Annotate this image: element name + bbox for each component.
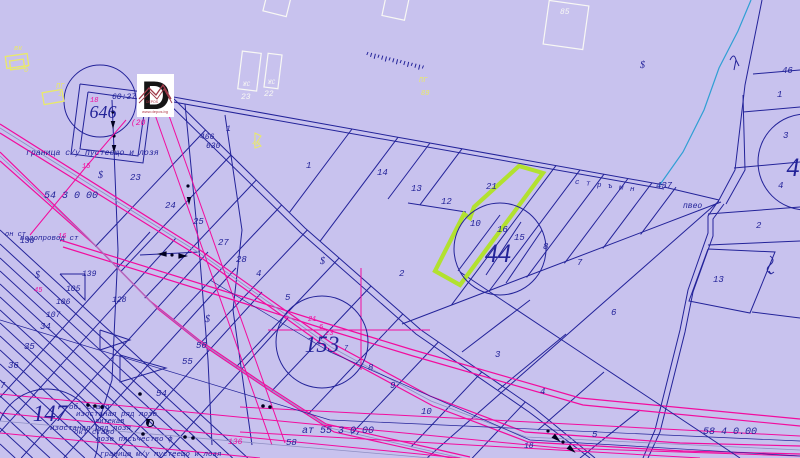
svg-text:18: 18 [90,97,98,105]
svg-text:18: 18 [524,442,534,451]
svg-text:6: 6 [611,308,617,318]
svg-text:15: 15 [514,233,525,243]
svg-text:147: 147 [33,401,69,426]
svg-text:3: 3 [495,350,501,360]
svg-text:4: 4 [787,153,800,182]
svg-text:ъ: ъ [608,183,613,191]
svg-text:ЖС: ЖС [267,79,276,86]
svg-text:4: 4 [256,269,261,279]
svg-text:4: 4 [778,181,783,191]
svg-text:40: 40 [252,140,260,147]
svg-text:54 3 0 00: 54 3 0 00 [44,191,98,202]
svg-text:466: 466 [200,133,215,142]
svg-text:89: 89 [421,90,429,98]
svg-text:34: 34 [40,322,51,332]
svg-text:1: 1 [226,125,231,134]
svg-text:5: 5 [592,430,598,440]
svg-text:44: 44 [485,239,511,268]
svg-text:21: 21 [308,316,316,324]
svg-text:ЖС: ЖС [242,81,251,88]
svg-text:10: 10 [470,219,481,229]
svg-text:4: 4 [540,387,545,397]
svg-text:10: 10 [421,407,432,417]
svg-text:46: 46 [782,66,793,76]
svg-text:25: 25 [193,217,204,227]
svg-text:153: 153 [305,332,340,357]
svg-text:60:37: 60:37 [112,93,136,102]
svg-text:128: 128 [112,296,127,305]
svg-text:р: р [596,182,602,190]
svg-text:2: 2 [756,221,762,231]
svg-text:23: 23 [130,173,141,183]
svg-text:15: 15 [82,163,91,171]
svg-text:136: 136 [228,438,243,447]
svg-text:27: 27 [218,238,229,248]
svg-text:1: 1 [306,161,311,171]
svg-text:3: 3 [783,131,789,141]
svg-text:$: $ [98,170,103,181]
svg-text:вк: вк [14,45,23,53]
svg-text:13: 13 [411,184,422,194]
svg-text:58 4 0.00: 58 4 0.00 [703,427,757,438]
svg-text:пвео: пвео [683,202,702,211]
svg-text:13: 13 [713,275,724,285]
svg-text:(20: (20 [131,119,146,128]
svg-text:35: 35 [24,342,35,352]
svg-text:106: 106 [56,298,71,307]
svg-text:54: 54 [156,389,167,399]
svg-text:8: 8 [543,242,549,252]
svg-text:ат 55 3 0,00: ат 55 3 0,00 [302,426,374,437]
svg-text:58: 58 [286,438,297,448]
svg-text:$: $ [205,314,210,325]
svg-text:45: 45 [34,287,43,295]
svg-text:36: 36 [8,361,19,371]
svg-text:DEPOS: DEPOS [146,100,159,104]
svg-text:8: 8 [368,363,374,373]
svg-text:22: 22 [264,90,274,99]
svg-text:56: 56 [196,341,207,351]
svg-text:5: 5 [285,293,291,303]
svg-text:107: 107 [46,311,61,320]
svg-text:граница с/у пустеещо и лозя: граница с/у пустеещо и лозя [26,148,159,158]
svg-text:$: $ [640,60,645,71]
svg-text:2: 2 [399,269,405,279]
svg-text:7: 7 [577,258,583,268]
svg-text:ПГ: ПГ [419,77,428,85]
svg-text:16: 16 [497,225,508,235]
svg-text:9: 9 [390,381,396,391]
svg-text:ПГ: ПГ [56,83,65,91]
svg-text:6: 6 [319,324,323,332]
svg-text:$: $ [35,270,40,281]
svg-text:т: т [586,180,591,188]
svg-text:105: 105 [66,285,81,294]
svg-text:139: 139 [82,270,97,279]
svg-text:55: 55 [182,357,193,367]
svg-text:с: с [575,179,580,187]
svg-text:1: 1 [777,90,782,100]
svg-text:23: 23 [241,93,251,102]
svg-text:28: 28 [236,255,247,265]
svg-text:1: 1 [58,91,62,99]
svg-text:7: 7 [0,381,6,391]
svg-text:130: 130 [20,237,35,246]
svg-text:граница м/у пустеещо и лозя: граница м/у пустеещо и лозя [100,451,222,458]
svg-text:24: 24 [165,201,176,211]
svg-text:$: $ [320,256,325,267]
svg-text:23: 23 [325,330,333,338]
svg-text:630: 630 [206,142,221,151]
svg-text:437: 437 [656,181,673,191]
svg-text:85: 85 [560,8,570,17]
svg-text:12: 12 [441,197,452,207]
svg-text:www.depos.bg: www.depos.bg [142,109,168,114]
svg-text:21: 21 [486,182,497,192]
svg-text:646: 646 [90,102,117,122]
svg-text:14: 14 [377,168,388,178]
svg-text:лозе пясъчество ф: лозе пясъчество ф [95,436,173,444]
svg-text:м: м [618,185,624,193]
svg-text:н: н [630,186,635,194]
